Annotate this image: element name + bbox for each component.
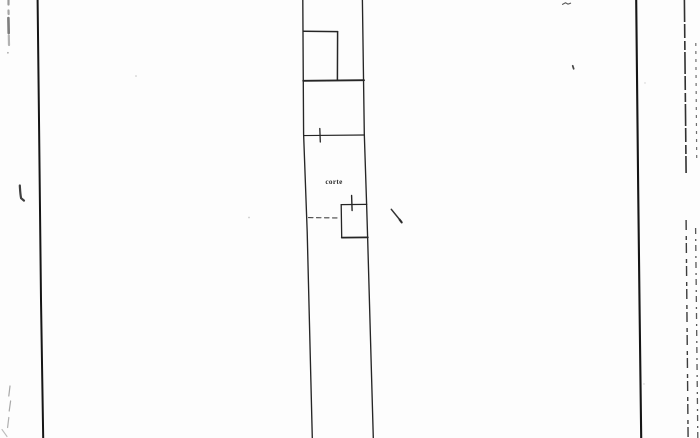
dot-speck-right [573,66,574,69]
annex-square-left [341,205,342,238]
edge-artifact-line-inner-bottom [686,220,688,438]
faint-speck-center [248,217,250,219]
margin-hook-mark [20,186,24,201]
diagonal-stray-tip [400,220,402,223]
courtyard-label: corte [325,178,342,186]
squiggle-speck-top-right [563,3,571,5]
right-border-line [636,0,641,438]
left-border-line [38,0,44,438]
edge-artifact-line-outer-top [696,43,697,158]
scanned-page: corte [0,0,700,438]
right-scan-edge-artifacts [684,0,697,438]
edge-artifact-line-outer-bottom [696,228,698,438]
page-borders [38,0,642,438]
faint-speck-right-1 [644,82,645,83]
strip-right-boundary [362,0,373,438]
room-divider-lower [304,135,365,136]
edge-artifact-line-inner-top [684,0,686,173]
stray-specks [135,3,646,385]
margin-bottom-dash-3 [8,418,9,428]
door-tick-annex [352,196,353,211]
parcel-strip [303,0,374,438]
faint-speck-left [135,75,137,77]
margin-bottom-dash-2 [9,401,10,411]
diagonal-stray-mark [391,209,401,222]
left-margin-marks [2,0,24,437]
door-tick-upper [320,129,321,143]
margin-speck [7,52,9,54]
strip-left-boundary [303,0,313,438]
faint-speck-right-2 [643,383,644,384]
margin-bottom-diagonal [2,430,7,437]
room-divider-upper [303,80,364,81]
margin-bottom-dash-1 [9,386,10,396]
floor-plan-drawing: corte [0,0,700,438]
